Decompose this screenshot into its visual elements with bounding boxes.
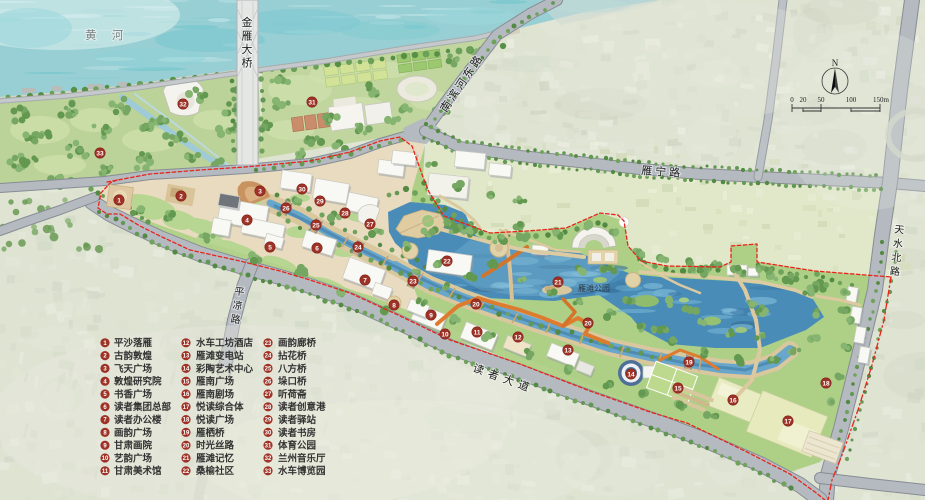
svg-text:16: 16 [183,392,190,398]
svg-text:12: 12 [183,341,190,347]
svg-text:古韵敦煌: 古韵敦煌 [114,350,153,362]
svg-text:甘肃画院: 甘肃画院 [114,440,153,452]
svg-text:八方桥: 八方桥 [277,363,307,375]
svg-text:N: N [832,58,839,68]
svg-text:体育公园: 体育公园 [278,440,316,452]
svg-text:18: 18 [822,380,830,387]
svg-text:画韵廊桥: 画韵廊桥 [278,337,317,349]
svg-text:15: 15 [674,385,682,392]
svg-text:敦煌研究院: 敦煌研究院 [114,376,162,388]
svg-text:路: 路 [889,264,900,278]
svg-text:12: 12 [514,334,522,341]
svg-text:29: 29 [316,198,324,205]
svg-text:水: 水 [892,237,903,250]
svg-text:24: 24 [265,354,272,360]
svg-text:11: 11 [102,469,109,475]
svg-text:27: 27 [265,392,272,398]
svg-text:17: 17 [784,418,792,425]
svg-text:31: 31 [265,443,272,449]
svg-text:22: 22 [183,469,190,475]
svg-text:14: 14 [627,371,635,378]
svg-text:21: 21 [554,279,562,286]
svg-text:雁滩公园: 雁滩公园 [578,283,610,293]
svg-text:13: 13 [564,347,572,354]
svg-text:27: 27 [366,221,374,228]
svg-text:25: 25 [265,367,272,373]
svg-text:雁南剧场: 雁南剧场 [196,388,235,400]
svg-text:14: 14 [183,367,190,373]
svg-text:桥: 桥 [242,57,253,70]
svg-text:15: 15 [183,379,190,385]
svg-text:19: 19 [685,359,693,366]
svg-text:垛口桥: 垛口桥 [278,376,307,388]
svg-text:19: 19 [183,431,190,437]
svg-text:雁栖桥: 雁栖桥 [196,427,225,439]
svg-text:1: 1 [117,197,121,204]
svg-text:10: 10 [102,456,109,462]
svg-text:28: 28 [341,210,349,217]
svg-text:32: 32 [179,101,187,108]
svg-text:彩陶艺术中心: 彩陶艺术中心 [195,363,254,375]
svg-text:时光丝路: 时光丝路 [196,440,235,452]
svg-text:雁滩记忆: 雁滩记忆 [196,452,235,464]
svg-text:20: 20 [472,301,480,308]
svg-text:9: 9 [429,312,433,319]
svg-text:甘肃美术馆: 甘肃美术馆 [114,465,162,477]
svg-text:28: 28 [265,405,272,411]
svg-text:10: 10 [441,331,449,338]
svg-text:3: 3 [258,188,262,195]
svg-text:7: 7 [363,277,367,284]
svg-text:18: 18 [183,418,190,424]
svg-text:50: 50 [818,96,826,104]
svg-text:4: 4 [245,217,249,224]
svg-text:读者办公楼: 读者办公楼 [114,414,162,426]
svg-text:13: 13 [183,354,190,360]
svg-text:金: 金 [242,15,253,29]
svg-text:33: 33 [265,469,272,475]
svg-text:16: 16 [729,397,737,404]
svg-text:平: 平 [234,286,245,298]
svg-text:20: 20 [183,443,190,449]
svg-text:兰州音乐厅: 兰州音乐厅 [278,452,326,464]
svg-text:雁滩变电站: 雁滩变电站 [196,350,244,362]
svg-text:飞天广场: 飞天广场 [114,363,153,375]
svg-text:5: 5 [268,244,272,251]
svg-text:33: 33 [96,150,104,157]
svg-text:29: 29 [265,418,272,424]
svg-text:读者创意港: 读者创意港 [278,401,326,413]
svg-text:桑榆社区: 桑榆社区 [196,465,235,477]
svg-text:11: 11 [474,329,481,336]
svg-text:22: 22 [443,258,451,265]
svg-text:150m: 150m [873,96,890,104]
svg-text:30: 30 [265,431,272,437]
svg-text:听荷斋: 听荷斋 [278,388,307,400]
svg-text:23: 23 [409,278,417,285]
svg-text:悦读综合体: 悦读综合体 [196,401,244,413]
svg-text:26: 26 [282,205,290,212]
svg-text:雁南广场: 雁南广场 [196,376,235,388]
svg-text:30: 30 [298,186,306,193]
svg-text:23: 23 [265,341,272,347]
svg-text:天: 天 [894,225,905,237]
svg-text:读者驿站: 读者驿站 [278,414,317,426]
svg-text:21: 21 [183,456,190,462]
svg-text:画韵广场: 画韵广场 [114,427,153,439]
svg-text:悦读广场: 悦读广场 [196,414,235,426]
svg-text:2: 2 [179,193,183,200]
svg-text:8: 8 [392,302,396,309]
svg-text:平沙落雁: 平沙落雁 [114,337,153,349]
svg-text:水车工坊酒店: 水车工坊酒店 [196,337,254,349]
svg-text:20: 20 [800,96,808,104]
svg-text:水车博览园: 水车博览园 [278,465,326,477]
svg-text:雁: 雁 [242,30,253,43]
svg-text:100: 100 [846,96,857,104]
svg-text:拈花桥: 拈花桥 [278,350,307,362]
svg-text:艺韵广场: 艺韵广场 [114,452,153,464]
svg-text:书香广场: 书香广场 [114,388,153,400]
svg-text:6: 6 [315,245,319,252]
svg-text:北: 北 [891,251,902,264]
svg-text:大: 大 [242,42,253,56]
svg-text:26: 26 [265,379,272,385]
svg-text:25: 25 [312,222,320,229]
svg-text:读者集团总部: 读者集团总部 [114,401,172,413]
svg-text:24: 24 [354,244,362,251]
svg-text:读者书房: 读者书房 [278,427,316,439]
svg-text:17: 17 [183,405,190,411]
svg-text:20: 20 [584,320,592,327]
svg-text:31: 31 [308,99,316,106]
svg-text:0: 0 [790,96,794,104]
svg-text:32: 32 [265,456,272,462]
